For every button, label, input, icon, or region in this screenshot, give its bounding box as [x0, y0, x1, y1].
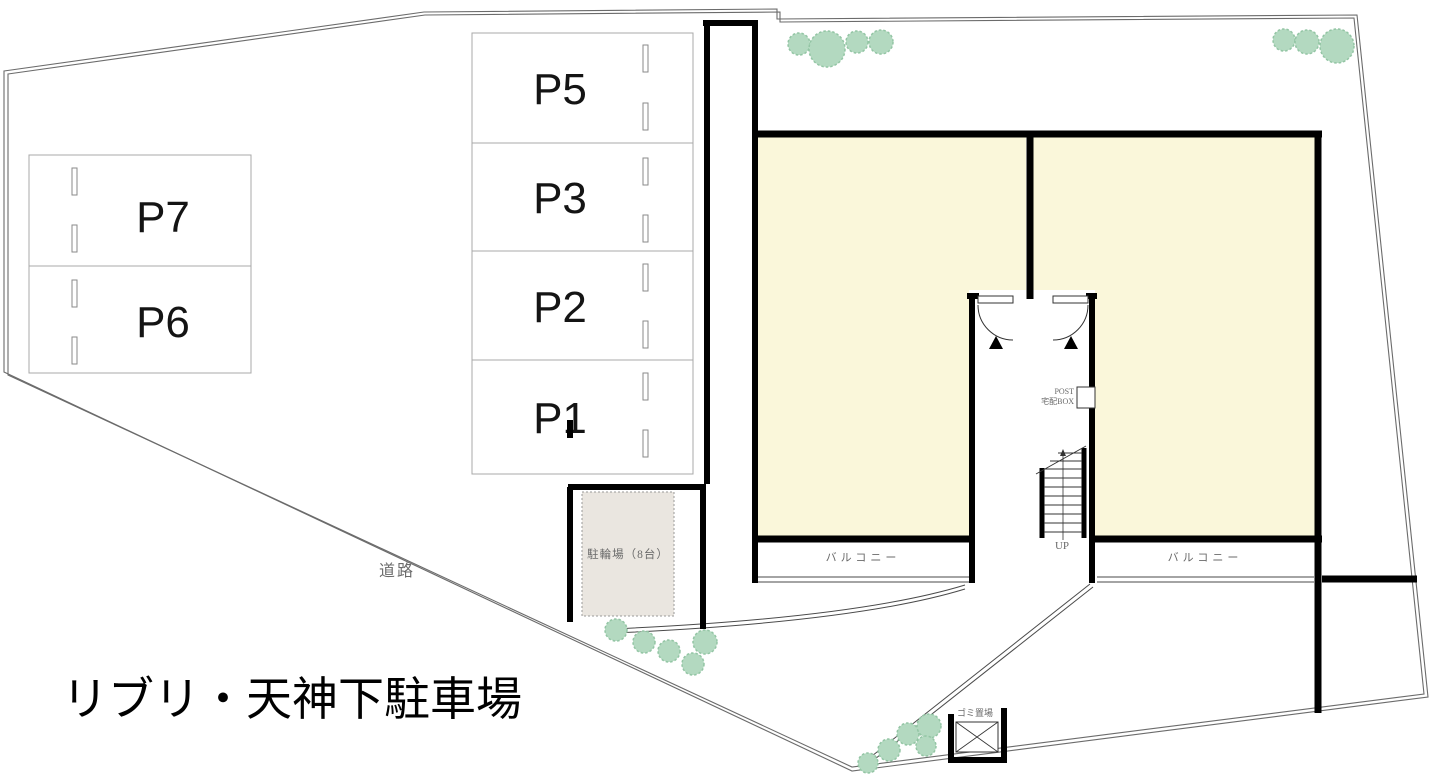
- tire-stop: [643, 103, 648, 130]
- garbage-area: ゴミ置場: [956, 707, 998, 752]
- parking-center-column: P5 P3 P2 P1: [472, 33, 693, 474]
- page-title: リブリ・天神下駐車場: [62, 673, 522, 725]
- parking-left-column: P7 P6: [29, 155, 251, 373]
- space-label-p5: P5: [533, 65, 587, 114]
- trees-bottom: [858, 714, 941, 773]
- trees-top-left: [788, 30, 893, 67]
- tire-stop: [643, 321, 648, 348]
- door-leaf-right: [1053, 296, 1088, 303]
- tire-stop: [72, 280, 77, 307]
- bicycle-parking-area: 駐輪場（8台）: [582, 492, 674, 616]
- up-label: UP: [1055, 540, 1069, 552]
- door-leaf-left: [978, 296, 1013, 303]
- space-label-p7: P7: [136, 193, 190, 242]
- garbage-label: ゴミ置場: [957, 707, 993, 718]
- balcony-left-label: バルコニー: [826, 551, 901, 564]
- trees-top-right: [1273, 29, 1354, 63]
- entrance-corridor: [969, 290, 1095, 583]
- space-label-p2: P2: [533, 283, 587, 332]
- balcony-right-label: バルコニー: [1168, 551, 1243, 564]
- tire-stop: [643, 264, 648, 291]
- post-label-line1: POST: [1054, 387, 1074, 396]
- bicycle-parking-label: 駐輪場（8台）: [587, 547, 669, 561]
- space-label-p1: P1: [533, 394, 587, 443]
- post-label-line2: 宅配BOX: [1041, 396, 1074, 406]
- tire-stop: [643, 430, 648, 457]
- tire-stop: [643, 158, 648, 185]
- site-plan: P7 P6 P5 P3 P2 P1 駐輪場（8台）: [0, 0, 1431, 781]
- tire-stop: [643, 45, 648, 72]
- space-label-p6: P6: [136, 298, 190, 347]
- tire-stop: [72, 225, 77, 252]
- tire-stop: [72, 168, 77, 195]
- space-label-p3: P3: [533, 174, 587, 223]
- tire-stop: [643, 373, 648, 400]
- tire-stop: [643, 215, 648, 242]
- road-label: 道路: [379, 562, 415, 580]
- tire-stop: [72, 337, 77, 364]
- post-box-icon: [1077, 387, 1095, 408]
- walkway-edges: [612, 584, 1093, 770]
- building-units: [758, 134, 1318, 583]
